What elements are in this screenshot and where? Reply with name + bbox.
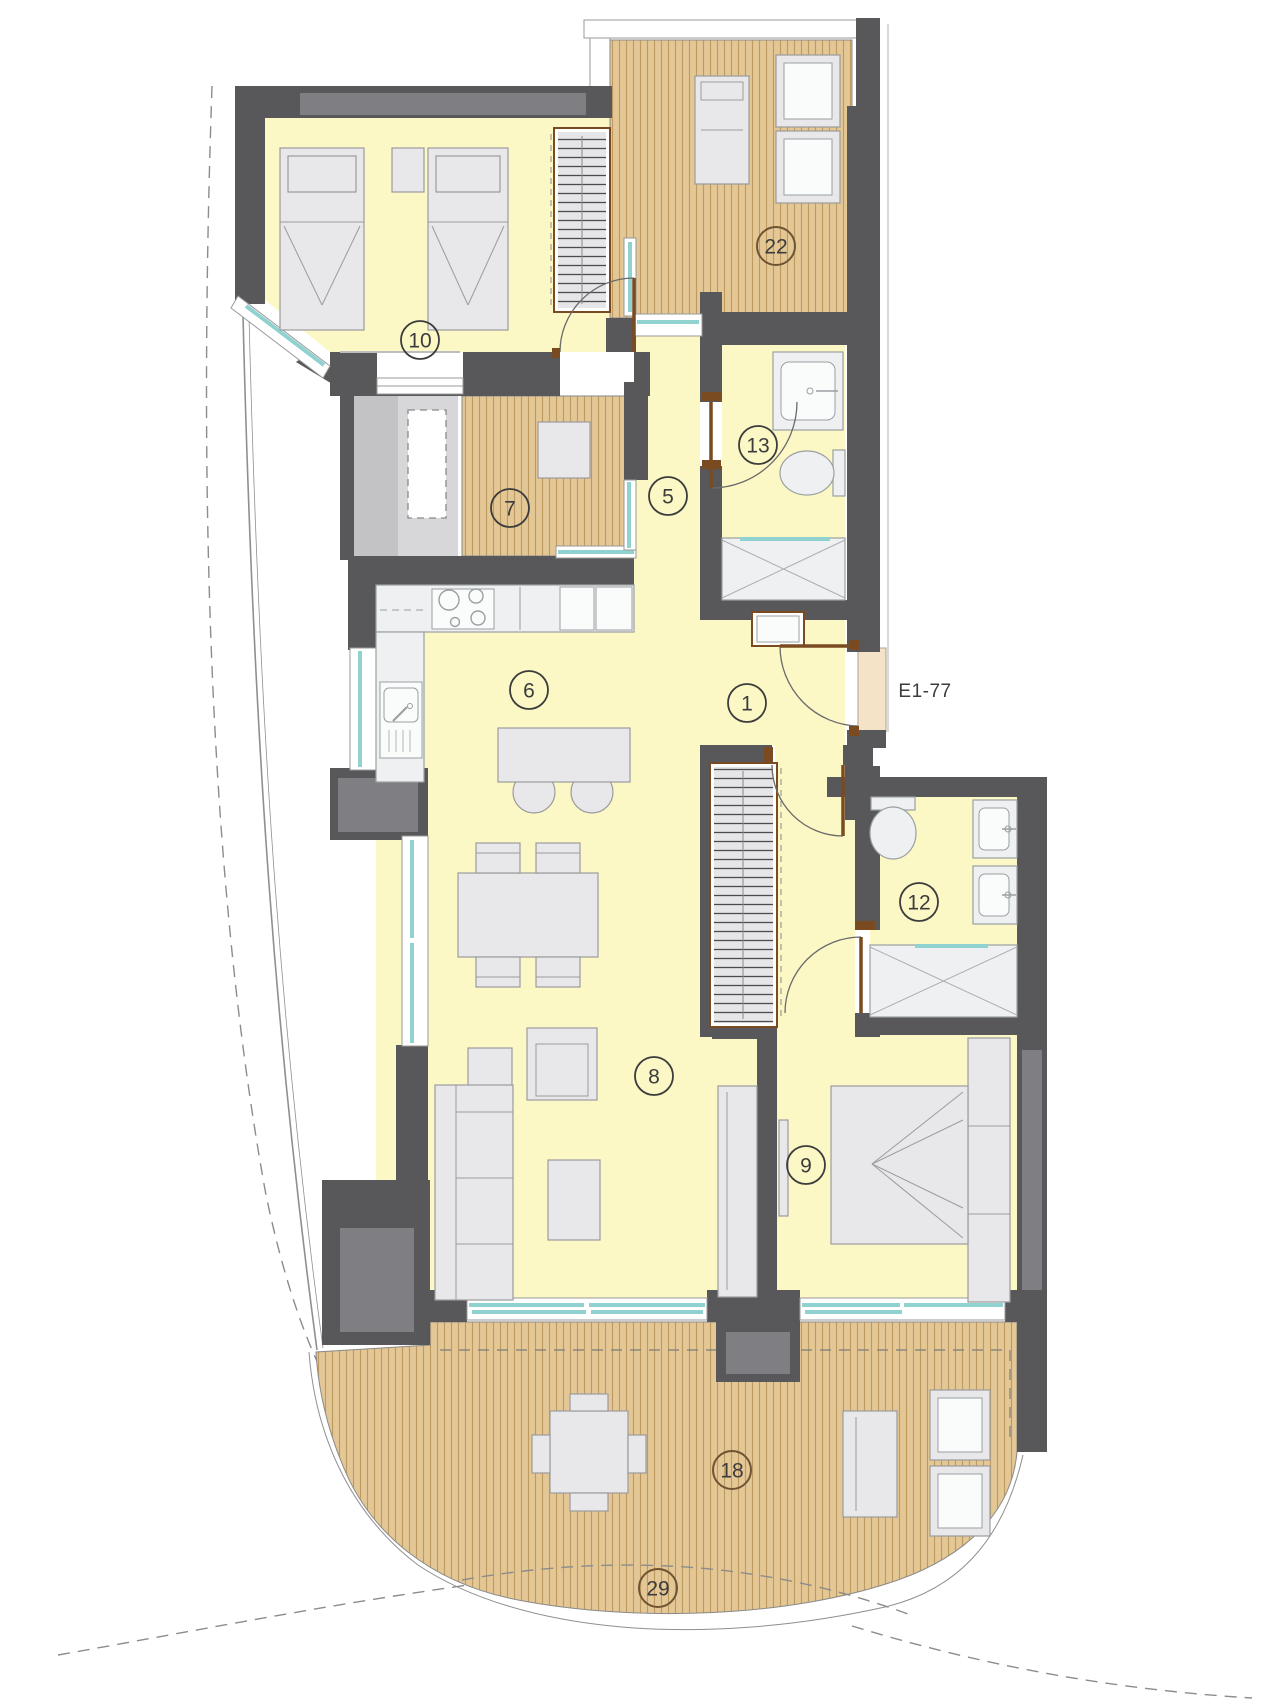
sofa (435, 1085, 513, 1300)
svg-text:18: 18 (720, 1460, 743, 1483)
utility-area (354, 396, 458, 556)
chair (536, 843, 580, 873)
svg-text:10: 10 (408, 330, 431, 353)
sun-lounger (843, 1411, 897, 1517)
outdoor-table (550, 1411, 628, 1493)
cooktop (432, 589, 494, 629)
floor-plan: 10 22 7 5 13 6 1 12 8 9 18 (0, 0, 1280, 1707)
dining-table (458, 873, 598, 957)
living-window-west (402, 836, 428, 1046)
terrace-18-deck (316, 1322, 1017, 1614)
armchair (527, 1028, 597, 1100)
svg-text:9: 9 (800, 1155, 812, 1178)
entry-landing (858, 648, 886, 732)
hallway-terrace-window (634, 314, 702, 336)
patio-table (538, 422, 590, 478)
headboard (968, 1038, 1010, 1302)
tv-sideboard (718, 1086, 757, 1297)
toilet (833, 450, 845, 496)
nightstand (392, 148, 424, 192)
svg-text:29: 29 (646, 1578, 669, 1601)
appliance-outline (408, 410, 446, 518)
svg-text:7: 7 (504, 498, 516, 521)
side-table (468, 1048, 512, 1090)
svg-text:12: 12 (907, 892, 930, 915)
kitchen-counter (376, 585, 634, 632)
outdoor-chair (628, 1435, 646, 1473)
terrace-22-parapet (584, 20, 860, 38)
svg-text:13: 13 (746, 435, 769, 458)
chair (476, 957, 520, 987)
svg-text:1: 1 (741, 693, 753, 716)
kitchen-window (350, 648, 376, 770)
kitchen-island (498, 728, 630, 782)
outdoor-chair (570, 1394, 608, 1411)
floor-plan-page: 10 22 7 5 13 6 1 12 8 9 18 (0, 0, 1280, 1707)
svg-text:8: 8 (648, 1066, 660, 1089)
outdoor-chair (532, 1435, 550, 1473)
coffee-table (548, 1160, 600, 1240)
unit-label: E1-77 (898, 681, 951, 702)
chair (476, 843, 520, 873)
svg-text:22: 22 (764, 236, 787, 259)
chair (536, 957, 580, 987)
svg-text:5: 5 (662, 486, 674, 509)
svg-text:6: 6 (523, 680, 535, 703)
double-bed (831, 1086, 968, 1244)
outdoor-chair (570, 1493, 608, 1511)
living-sliding-door (467, 1298, 707, 1320)
